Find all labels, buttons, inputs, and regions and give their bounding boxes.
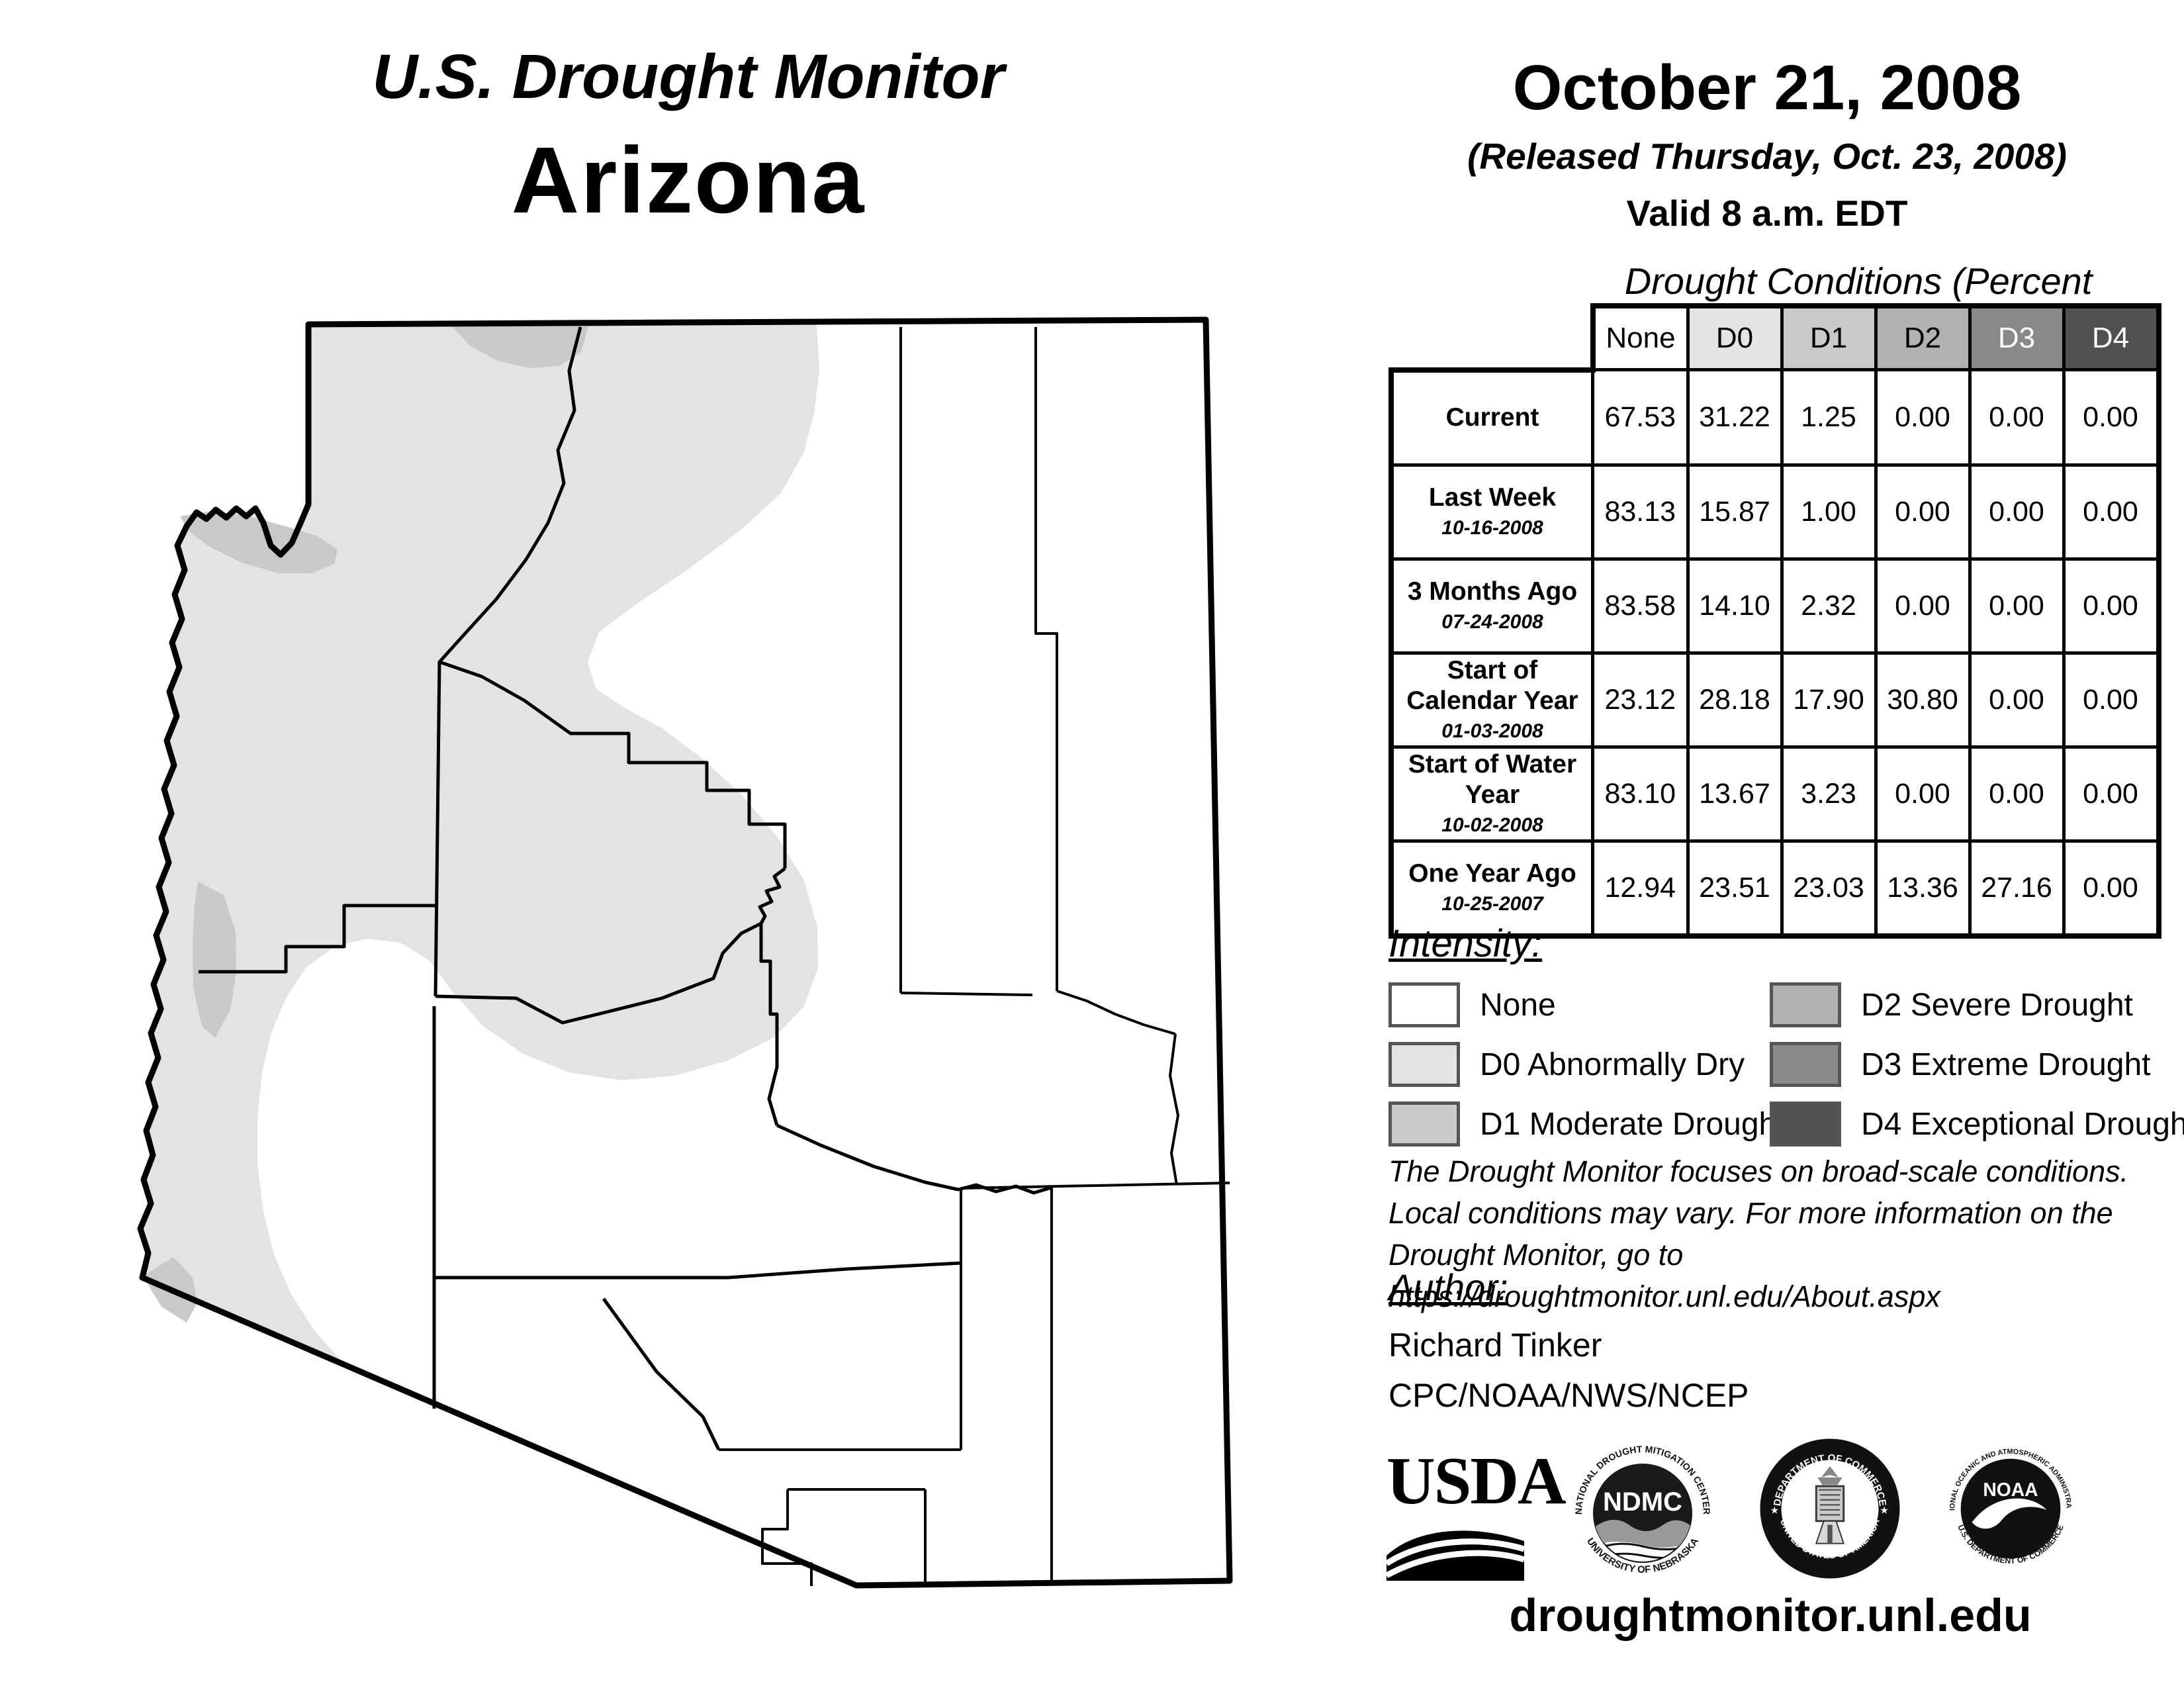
row-label-date: 10-02-2008 [1394, 813, 1591, 838]
row-label-text: Start of Calendar Year [1394, 655, 1591, 716]
legend-label: D3 Extreme Drought [1861, 1047, 2151, 1083]
website-url: droughtmonitor.unl.edu [1416, 1589, 2124, 1642]
title-block: U.S. Drought Monitor Arizona [218, 41, 1158, 235]
value-cell: 0.00 [2064, 370, 2159, 465]
map-d0-region [140, 324, 819, 1382]
report-title: U.S. Drought Monitor [218, 41, 1158, 113]
legend-item-d0: D0 Abnormally Dry [1388, 1044, 1770, 1085]
value-cell: 0.00 [2064, 465, 2159, 559]
map-date: October 21, 2008 [1416, 52, 2118, 124]
row-label: 3 Months Ago07-24-2008 [1391, 559, 1593, 653]
value-cell: 0.00 [2064, 559, 2159, 653]
legend-label: D4 Exceptional Drought [1861, 1106, 2184, 1143]
legend-item-d1: D1 Moderate Drought [1388, 1103, 1770, 1145]
value-cell: 83.10 [1593, 747, 1688, 841]
value-cell: 83.58 [1593, 559, 1688, 653]
value-cell: 31.22 [1688, 370, 1782, 465]
table-corner-blank [1391, 306, 1593, 370]
row-label-date: 07-24-2008 [1394, 610, 1591, 635]
column-header-d0: D0 [1688, 306, 1782, 370]
arizona-drought-map [93, 285, 1271, 1615]
drought-conditions-table: NoneD0D1D2D3D4Current67.5331.221.250.000… [1388, 303, 2161, 939]
release-date: (Released Thursday, Oct. 23, 2008) [1416, 135, 2118, 177]
value-cell: 28.18 [1688, 653, 1782, 747]
value-cell: 0.00 [2064, 653, 2159, 747]
column-header-none: None [1593, 306, 1688, 370]
legend-item-d3: D3 Extreme Drought [1770, 1044, 2136, 1085]
table-row: Start of Calendar Year01-03-200823.1228.… [1391, 653, 2159, 747]
disclaimer-line: Local conditions may vary. For more info… [1388, 1192, 2169, 1234]
legend-label: D2 Severe Drought [1861, 987, 2133, 1023]
legend-item-none: None [1388, 984, 1770, 1025]
table-row: 3 Months Ago07-24-200883.5814.102.320.00… [1391, 559, 2159, 653]
value-cell: 30.80 [1876, 653, 1970, 747]
value-cell: 2.32 [1782, 559, 1876, 653]
legend-heading: Intensity: [1388, 921, 2136, 966]
legend-swatch-d2 [1770, 982, 1841, 1027]
author-name: Richard Tinker [1388, 1326, 1749, 1364]
author-org: CPC/NOAA/NWS/NCEP [1388, 1376, 1749, 1415]
column-header-d2: D2 [1876, 306, 1970, 370]
legend-column-right: D2 Severe DroughtD3 Extreme DroughtD4 Ex… [1770, 984, 2136, 1145]
author-heading: Author: [1388, 1266, 1749, 1309]
row-label-date: 01-03-2008 [1394, 719, 1591, 744]
ndmc-logo-text: NDMC [1603, 1487, 1682, 1517]
drought-monitor-report: U.S. Drought Monitor Arizona October 21,… [0, 0, 2184, 1688]
row-label-text: 3 Months Ago [1394, 577, 1591, 607]
date-block: October 21, 2008 (Released Thursday, Oct… [1416, 52, 2118, 234]
row-label-date: 10-16-2008 [1394, 516, 1591, 541]
legend-swatch-d4 [1770, 1102, 1841, 1147]
table-row: Current67.5331.221.250.000.000.00 [1391, 370, 2159, 465]
row-label: Start of Water Year10-02-2008 [1391, 747, 1593, 841]
value-cell: 0.00 [1876, 370, 1970, 465]
doc-eagle-shield-icon [1816, 1466, 1843, 1544]
row-label-text: Start of Water Year [1394, 749, 1591, 810]
value-cell: 0.00 [1970, 370, 2064, 465]
author-block: Author: Richard Tinker CPC/NOAA/NWS/NCEP [1388, 1266, 1749, 1415]
value-cell: 0.00 [1876, 559, 1970, 653]
intensity-legend: Intensity: NoneD0 Abnormally DryD1 Moder… [1388, 921, 2136, 1145]
value-cell: 0.00 [1970, 559, 2064, 653]
value-cell: 0.00 [1876, 465, 1970, 559]
legend-swatch-d3 [1770, 1042, 1841, 1087]
doc-star-left: ★ [1770, 1505, 1780, 1517]
legend-label: D0 Abnormally Dry [1480, 1047, 1745, 1083]
value-cell: 0.00 [2064, 747, 2159, 841]
ndmc-logo: NDMC NATIONAL DROUGHT MITIGATION CENTER … [1563, 1429, 1722, 1587]
value-cell: 23.12 [1593, 653, 1688, 747]
row-label-date: 10-25-2007 [1394, 892, 1591, 917]
row-label: Current [1391, 370, 1593, 465]
usda-logo-text: USDA [1387, 1448, 1524, 1515]
value-cell: 0.00 [1876, 747, 1970, 841]
legend-column-left: NoneD0 Abnormally DryD1 Moderate Drought [1388, 984, 1770, 1145]
value-cell: 1.00 [1782, 465, 1876, 559]
row-label: Last Week10-16-2008 [1391, 465, 1593, 559]
disclaimer-line: The Drought Monitor focuses on broad-sca… [1388, 1150, 2169, 1192]
usda-swoosh-icon [1387, 1515, 1524, 1581]
value-cell: 15.87 [1688, 465, 1782, 559]
department-of-commerce-logo: DEPARTMENT OF COMMERCE UNITED STATES OF … [1755, 1434, 1905, 1583]
column-header-d3: D3 [1970, 306, 2064, 370]
doc-star-right: ★ [1880, 1505, 1889, 1517]
legend-swatch-d1 [1388, 1102, 1460, 1147]
valid-time: Valid 8 a.m. EDT [1416, 192, 2118, 234]
column-header-d4: D4 [2064, 306, 2159, 370]
state-name: Arizona [218, 126, 1158, 235]
legend-label: None [1480, 987, 1556, 1023]
usda-logo: USDA [1387, 1448, 1524, 1587]
value-cell: 3.23 [1782, 747, 1876, 841]
legend-columns: NoneD0 Abnormally DryD1 Moderate Drought… [1388, 984, 2136, 1145]
noaa-logo: NATIONAL OCEANIC AND ATMOSPHERIC ADMINIS… [1936, 1434, 2085, 1583]
value-cell: 0.00 [1970, 465, 2064, 559]
column-header-d1: D1 [1782, 306, 1876, 370]
value-cell: 83.13 [1593, 465, 1688, 559]
value-cell: 17.90 [1782, 653, 1876, 747]
legend-swatch-d0 [1388, 1042, 1460, 1087]
value-cell: 13.67 [1688, 747, 1782, 841]
row-label-text: Last Week [1394, 483, 1591, 513]
value-cell: 1.25 [1782, 370, 1876, 465]
value-cell: 0.00 [1970, 747, 2064, 841]
legend-label: D1 Moderate Drought [1480, 1106, 1786, 1143]
value-cell: 14.10 [1688, 559, 1782, 653]
table-row: Start of Water Year10-02-200883.1013.673… [1391, 747, 2159, 841]
legend-item-d2: D2 Severe Drought [1770, 984, 2136, 1025]
value-cell: 67.53 [1593, 370, 1688, 465]
table-row: Last Week10-16-200883.1315.871.000.000.0… [1391, 465, 2159, 559]
row-label-text: Current [1394, 402, 1591, 433]
row-label: Start of Calendar Year01-03-2008 [1391, 653, 1593, 747]
noaa-logo-text: NOAA [1983, 1479, 2038, 1500]
value-cell: 0.00 [1970, 653, 2064, 747]
row-label-text: One Year Ago [1394, 859, 1591, 889]
legend-swatch-none [1388, 982, 1460, 1027]
legend-item-d4: D4 Exceptional Drought [1770, 1103, 2136, 1145]
